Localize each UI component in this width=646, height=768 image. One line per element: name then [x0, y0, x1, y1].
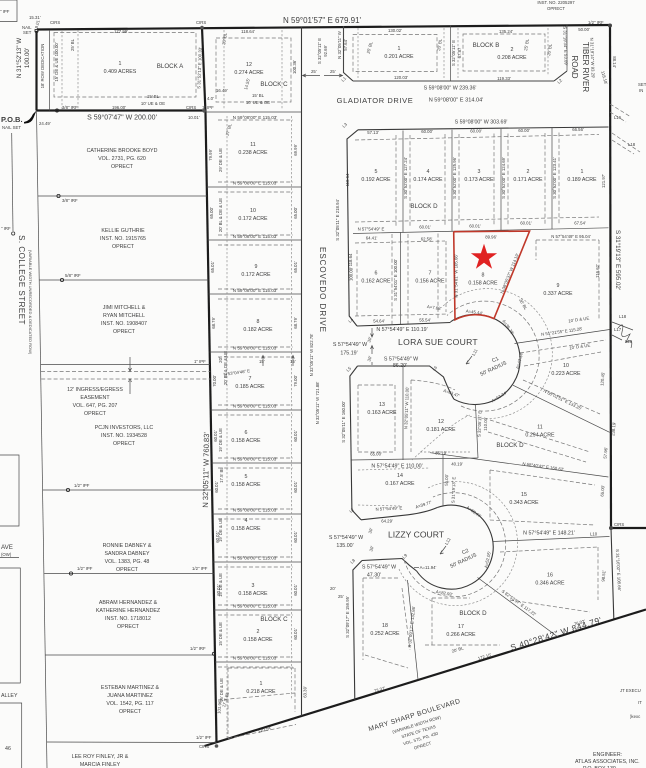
svg-text:8: 8: [257, 319, 260, 325]
svg-text:0.223 ACRE: 0.223 ACRE: [551, 371, 581, 377]
svg-text:ATLAS ASSOCIATES, INC.: ATLAS ASSOCIATES, INC.: [575, 759, 640, 765]
svg-text:57.64': 57.64': [343, 39, 348, 51]
svg-text:4.0': 4.0': [207, 96, 214, 101]
svg-text:CIRS: CIRS: [186, 105, 196, 110]
svg-text:S 57°54'49" W: S 57°54'49" W: [333, 342, 367, 348]
svg-text:BLOCK C: BLOCK C: [260, 616, 288, 623]
svg-text:60.01': 60.01': [419, 225, 431, 230]
svg-text:0.252 ACRE: 0.252 ACRE: [370, 631, 400, 637]
svg-text:" IRF: " IRF: [1, 226, 11, 231]
svg-text:)kexc: )kexc: [630, 714, 641, 719]
svg-text:0.158 ACRE: 0.158 ACRE: [231, 526, 261, 532]
svg-text:1/2" IPF: 1/2" IPF: [77, 566, 93, 571]
svg-text:12: 12: [438, 419, 444, 425]
svg-text:25': 25': [338, 594, 344, 599]
svg-text:2: 2: [257, 629, 260, 635]
svg-text:15' DE & UE 100.00': 15' DE & UE 100.00': [54, 42, 59, 81]
svg-text:N 57°54'49" E: N 57°54'49" E: [358, 227, 385, 232]
svg-text:60.01': 60.01': [214, 481, 219, 493]
svg-text:65.00': 65.00': [600, 485, 606, 497]
svg-text:OPRECT: OPRECT: [84, 411, 107, 417]
svg-text:NAIL SET: NAIL SET: [2, 125, 21, 130]
svg-text:N 32°05'11" W 760.83': N 32°05'11" W 760.83': [201, 432, 211, 508]
svg-text:3: 3: [478, 169, 481, 175]
svg-text:INST. NO. 1908407: INST. NO. 1908407: [101, 321, 147, 327]
svg-text:9: 9: [557, 283, 560, 289]
svg-text:118.64: 118.64: [348, 253, 353, 266]
svg-text:10: 10: [250, 208, 256, 214]
svg-text:N 59°08'00" E 115.03': N 59°08'00" E 115.03': [233, 234, 278, 239]
svg-text:CIRS: CIRS: [50, 20, 60, 25]
svg-text:S 31°19'13" E: S 31°19'13" E: [451, 476, 457, 503]
svg-text:3: 3: [252, 583, 255, 589]
svg-text:0.343 ACRE: 0.343 ACRE: [509, 500, 539, 506]
svg-text:RONNIE DABNEY &: RONNIE DABNEY &: [103, 543, 152, 549]
svg-text:55.00': 55.00': [444, 474, 449, 486]
svg-text:64.29': 64.29': [381, 519, 393, 524]
svg-text:A=11.94': A=11.94': [420, 565, 437, 570]
svg-text:64.41': 64.41': [366, 236, 378, 241]
svg-text:S 31°54'01" E 100.00': S 31°54'01" E 100.00': [393, 259, 398, 301]
svg-text:60.01': 60.01': [215, 531, 220, 543]
svg-text:LIZZY COURT: LIZZY COURT: [388, 530, 445, 540]
svg-text:1" IPF: 1" IPF: [194, 359, 206, 364]
svg-text:15': 15': [259, 359, 265, 364]
svg-text:BLOCK D: BLOCK D: [496, 442, 524, 449]
svg-text:1/2" IPF: 1/2" IPF: [192, 566, 208, 571]
svg-text:110.00': 110.00': [483, 417, 488, 431]
svg-text:N 32°05'11" W 822.78': N 32°05'11" W 822.78': [309, 333, 314, 376]
svg-text:3/8" IRF: 3/8" IRF: [62, 198, 78, 203]
svg-text:4: 4: [427, 169, 430, 175]
svg-text:17.5' BL: 17.5' BL: [219, 467, 224, 483]
svg-text:121.97': 121.97': [601, 174, 606, 188]
svg-text:3/8" IRF: 3/8" IRF: [62, 105, 78, 110]
svg-text:55.54': 55.54': [419, 318, 431, 323]
svg-text:0.337 ACRE: 0.337 ACRE: [543, 291, 573, 297]
svg-text:S 32°05'11" E: S 32°05'11" E: [477, 411, 483, 437]
svg-text:60.01': 60.01': [293, 430, 298, 442]
svg-text:N 59°08'00" E 115.03': N 59°08'00" E 115.03': [233, 115, 278, 120]
svg-text:12: 12: [246, 62, 252, 68]
svg-text:JUANA MARTINEZ: JUANA MARTINEZ: [107, 693, 153, 699]
svg-text:1: 1: [581, 169, 584, 175]
svg-text:135.24': 135.24': [499, 29, 513, 34]
svg-text:65.01': 65.01': [210, 261, 215, 273]
svg-text:100.00': 100.00': [349, 267, 354, 281]
svg-text:60.01': 60.01': [293, 584, 298, 596]
svg-text:0.189 ACRE: 0.189 ACRE: [567, 177, 597, 183]
svg-text:N 31°52'13" W: N 31°52'13" W: [16, 38, 23, 78]
svg-text:4: 4: [245, 518, 248, 524]
svg-text:13: 13: [379, 402, 385, 408]
svg-text:2: 2: [527, 169, 530, 175]
svg-text:63.39': 63.39': [303, 686, 308, 698]
svg-text:OPRECT: OPRECT: [117, 624, 140, 630]
svg-text:S 57°54'49" W: S 57°54'49" W: [384, 357, 418, 363]
svg-text:6: 6: [375, 271, 378, 277]
svg-text:1/2" IRF: 1/2" IRF: [588, 20, 604, 25]
svg-text:65.00': 65.00': [293, 207, 298, 219]
svg-text:BLOCK D: BLOCK D: [459, 610, 487, 617]
svg-text:SANDRA DABNEY: SANDRA DABNEY: [104, 551, 150, 557]
svg-text:68.79': 68.79': [293, 317, 298, 329]
svg-text:N 59°08'00" E 115.03': N 59°08'00" E 115.03': [233, 404, 278, 409]
svg-text:N 59°08'00" E 314.04': N 59°08'00" E 314.04': [429, 98, 484, 104]
svg-text:N 59°08'00" E 115.03': N 59°08'00" E 115.03': [233, 288, 278, 293]
svg-text:15.31': 15.31': [29, 15, 41, 20]
svg-text:N 57°54'49" E 95.04': N 57°54'49" E 95.04': [551, 234, 591, 239]
svg-text:67.87: 67.87: [457, 47, 462, 58]
svg-text:0.163 ACRE: 0.163 ACRE: [367, 410, 397, 416]
svg-text:0.192 ACRE: 0.192 ACRE: [361, 177, 391, 183]
svg-text:IN: IN: [639, 88, 643, 93]
svg-text:10' UE & OE: 10' UE & OE: [246, 100, 270, 105]
svg-text:0.158 ACRE: 0.158 ACRE: [243, 637, 273, 643]
svg-text:100.36': 100.36': [292, 60, 297, 74]
svg-text:0.266 ACRE: 0.266 ACRE: [446, 632, 476, 638]
svg-text:CATHERINE BROOKE BOYD: CATHERINE BROOKE BOYD: [87, 148, 158, 154]
svg-text:OPRECT: OPRECT: [111, 164, 134, 170]
svg-text:1: 1: [260, 681, 263, 687]
svg-text:N 59°08'00" E 115.03': N 59°08'00" E 115.03': [233, 604, 278, 609]
svg-text:OPRECT: OPRECT: [119, 709, 142, 715]
svg-text:(VARIABLE WIDTH UNRECORDED & D: (VARIABLE WIDTH UNRECORDED & DEDICATED R…: [28, 250, 33, 355]
svg-text:0.409 ACRES: 0.409 ACRES: [104, 69, 137, 75]
svg-text:7: 7: [429, 271, 432, 277]
svg-text:116.62': 116.62': [595, 264, 600, 278]
svg-text:60.01': 60.01': [293, 481, 298, 493]
svg-text:ALLEY: ALLEY: [1, 693, 18, 699]
svg-text:KATHERINE HERNANDEZ: KATHERINE HERNANDEZ: [96, 608, 161, 614]
svg-text:CIRS: CIRS: [199, 744, 209, 749]
svg-text:118.64: 118.64: [345, 173, 350, 186]
svg-text:PCJN INVESTORS, LLC: PCJN INVESTORS, LLC: [95, 425, 154, 431]
svg-text:L10: L10: [590, 532, 598, 537]
svg-text:98.51': 98.51': [601, 570, 607, 582]
svg-text:92.69': 92.69': [323, 45, 328, 57]
svg-text:0.182 ACRE: 0.182 ACRE: [243, 327, 273, 333]
svg-text:15' BL: 15' BL: [147, 94, 160, 99]
svg-text:VOL. 1542, PG. 117: VOL. 1542, PG. 117: [106, 701, 153, 707]
svg-text:N 31°54'01" W 105.66': N 31°54'01" W 105.66': [454, 254, 459, 297]
svg-text:CIRS: CIRS: [196, 20, 206, 25]
svg-text:16: 16: [547, 573, 553, 579]
svg-text:15: 15: [521, 492, 527, 498]
svg-text:120.03': 120.03': [394, 75, 408, 80]
svg-text:INST. NO. 1934528: INST. NO. 1934528: [101, 433, 147, 439]
svg-text:70.00': 70.00': [212, 375, 217, 387]
svg-text:SET: SET: [638, 82, 646, 87]
svg-text:KELLIE GUTHRIE: KELLIE GUTHRIE: [101, 228, 145, 234]
svg-text:177.99': 177.99': [114, 29, 128, 34]
svg-text:BLOCK C: BLOCK C: [260, 81, 288, 88]
svg-text:46: 46: [5, 746, 11, 752]
svg-text:57.13': 57.13': [367, 130, 379, 135]
svg-text:10' UE & OE: 10' UE & OE: [141, 101, 165, 106]
svg-text:9: 9: [255, 264, 258, 270]
svg-text:15' BL: 15' BL: [252, 93, 265, 98]
svg-text:IT: IT: [638, 700, 642, 705]
svg-text:S 57°54'49" W: S 57°54'49" W: [362, 565, 396, 571]
svg-text:5: 5: [245, 474, 248, 480]
svg-text:LORA SUE COURT: LORA SUE COURT: [398, 337, 478, 347]
svg-text:VOL. 647, PG. 207: VOL. 647, PG. 207: [73, 403, 118, 409]
svg-text:0.171 ACRE: 0.171 ACRE: [513, 177, 543, 183]
svg-text:66.56': 66.56': [572, 127, 584, 132]
svg-text:INST. NO. 1915765: INST. NO. 1915765: [100, 236, 146, 242]
svg-text:INST. NO. 1718012: INST. NO. 1718012: [105, 616, 151, 622]
svg-text:N 32°05'11" W 721.88': N 32°05'11" W 721.88': [315, 381, 320, 424]
svg-text:88.14': 88.14': [612, 56, 617, 68]
svg-text:65.01': 65.01': [293, 261, 298, 273]
svg-text:2: 2: [511, 47, 514, 53]
svg-text:18: 18: [382, 623, 388, 629]
svg-text:L18: L18: [619, 314, 627, 319]
svg-text:S 32°05'11" E 160.00': S 32°05'11" E 160.00': [341, 401, 346, 443]
svg-text:19' DE & UE: 19' DE & UE: [218, 428, 223, 452]
svg-text:0.158 ACRE: 0.158 ACRE: [238, 591, 268, 597]
svg-text:S 59°08'00" W 303.69': S 59°08'00" W 303.69': [455, 120, 508, 126]
svg-text:S 59°08'00" W 239.36': S 59°08'00" W 239.36': [424, 86, 477, 92]
svg-text:ABRAM HERNANDEZ &: ABRAM HERNANDEZ &: [99, 600, 158, 606]
svg-text:1: 1: [398, 46, 401, 52]
svg-text:0.238 ACRE: 0.238 ACRE: [238, 150, 268, 156]
svg-text:N 59°08'00" E 115.03': N 59°08'00" E 115.03': [233, 346, 278, 351]
svg-text:OPRECT: OPRECT: [113, 441, 136, 447]
svg-text:" IPF: " IPF: [0, 9, 10, 14]
svg-text:25' BL: 25' BL: [70, 38, 75, 51]
svg-text:5/8" IRF: 5/8" IRF: [65, 273, 81, 278]
svg-text:0.158 ACRE: 0.158 ACRE: [231, 438, 261, 444]
svg-text:N 59°08'00" E 115.03': N 59°08'00" E 115.03': [233, 508, 278, 513]
svg-text:0.294 ACRE: 0.294 ACRE: [525, 433, 555, 439]
svg-text:79.99': 79.99': [208, 149, 213, 161]
svg-text:N 59°08'00" E 115.03': N 59°08'00" E 115.03': [233, 457, 278, 462]
svg-text:N 59°08'00" E 115.03': N 59°08'00" E 115.03': [233, 181, 278, 186]
svg-text:60.01': 60.01': [520, 221, 532, 226]
svg-text:S 32°05'11" E 218.94': S 32°05'11" E 218.94': [335, 199, 340, 241]
svg-text:20' BL & DE & UE: 20' BL & DE & UE: [218, 198, 223, 232]
svg-text:N 57°54'49" E 110.19': N 57°54'49" E 110.19': [376, 327, 427, 333]
svg-text:S 31°19'13" E 595.02': S 31°19'13" E 595.02': [614, 230, 621, 290]
svg-text:50.00': 50.00': [578, 27, 590, 32]
svg-text:BLOCK A: BLOCK A: [157, 63, 184, 70]
svg-text:0.172 ACRE: 0.172 ACRE: [241, 272, 271, 278]
svg-text:INST. NO. 2205297: INST. NO. 2205297: [537, 0, 575, 5]
svg-text:65.00': 65.00': [370, 452, 382, 457]
svg-text:OPRECT: OPRECT: [547, 6, 565, 11]
svg-text:40.19': 40.19': [451, 462, 463, 467]
svg-text:0.156 ACRE: 0.156 ACRE: [415, 279, 445, 285]
svg-text:S 57°54'49" W: S 57°54'49" W: [329, 535, 363, 541]
svg-text:0.174 ACRE: 0.174 ACRE: [413, 177, 443, 183]
svg-text:S 30°52'00" E 127.24': S 30°52'00" E 127.24': [403, 157, 408, 199]
svg-text:18' ROW DEDICATION: 18' ROW DEDICATION: [40, 44, 45, 89]
svg-text:S 30°52'00" E 124.69': S 30°52'00" E 124.69': [501, 157, 506, 199]
svg-text:N 57°54'49" E 148.21': N 57°54'49" E 148.21': [523, 531, 575, 537]
svg-text:14: 14: [397, 473, 403, 479]
svg-text:8: 8: [482, 273, 485, 279]
svg-text:54.64': 54.64': [373, 319, 385, 324]
svg-text:11: 11: [537, 425, 543, 431]
svg-text:S 59°07'47" W 200.00': S 59°07'47" W 200.00': [87, 114, 157, 122]
svg-text:69.99': 69.99': [293, 144, 298, 156]
svg-text:ESTEBAN MARTINEZ &: ESTEBAN MARTINEZ &: [101, 685, 160, 691]
svg-text:11: 11: [250, 142, 256, 148]
svg-text:AVE: AVE: [1, 544, 13, 551]
svg-text:P.O.B.: P.O.B.: [1, 115, 23, 124]
svg-text:S 32°05'11" E: S 32°05'11" E: [451, 40, 456, 66]
svg-text:100.00': 100.00': [24, 48, 31, 68]
svg-text:1" IPF: 1" IPF: [202, 105, 214, 110]
svg-text:0.201 ACRE: 0.201 ACRE: [384, 54, 414, 60]
svg-text:0.208 ACRE: 0.208 ACRE: [497, 55, 527, 61]
svg-text:15' DE & UE: 15' DE & UE: [218, 622, 223, 646]
svg-text:SET: SET: [23, 30, 32, 35]
svg-text:24.49': 24.49': [39, 121, 51, 126]
svg-text:MARCIA FINLEY: MARCIA FINLEY: [80, 762, 121, 768]
svg-text:86.20': 86.20': [393, 363, 407, 369]
svg-text:JT EXECU: JT EXECU: [620, 688, 641, 693]
svg-text:0.167 ACRE: 0.167 ACRE: [385, 481, 415, 487]
svg-text:ENGINEER:: ENGINEER:: [593, 752, 622, 758]
svg-text:OPRECT: OPRECT: [113, 329, 136, 335]
svg-text:0.346 ACRE: 0.346 ACRE: [535, 581, 565, 587]
svg-text:S 30°52'00" E 123.41': S 30°52'00" E 123.41': [552, 157, 557, 199]
svg-text:17: 17: [458, 624, 464, 630]
svg-text:1/2" IPF: 1/2" IPF: [196, 735, 212, 740]
svg-text:GLADIATOR DRIVE: GLADIATOR DRIVE: [337, 96, 414, 105]
svg-text:OPRECT: OPRECT: [112, 244, 135, 250]
svg-text:175.19': 175.19': [340, 351, 357, 357]
svg-text:0.158 ACRE: 0.158 ACRE: [468, 281, 498, 287]
svg-text:60.01': 60.01': [216, 584, 221, 596]
svg-text:OPRECT: OPRECT: [116, 567, 139, 573]
svg-text:16.49': 16.49': [216, 88, 228, 93]
svg-text:196.00': 196.00': [112, 105, 126, 110]
svg-text:130.02': 130.02': [388, 28, 402, 33]
svg-text:89.96': 89.96': [485, 235, 497, 240]
svg-text:0.173 ACRE: 0.173 ACRE: [464, 177, 494, 183]
svg-text:60.00': 60.00': [470, 129, 482, 134]
svg-text:10.01': 10.01': [188, 115, 200, 120]
svg-text:135.00': 135.00': [336, 543, 353, 549]
svg-text:N 32°05'11" W: N 32°05'11" W: [337, 30, 342, 59]
svg-text:1/2" IPF: 1/2" IPF: [74, 483, 90, 488]
svg-text:7: 7: [249, 376, 252, 382]
svg-text:N 59°01'57" E 679.91': N 59°01'57" E 679.91': [283, 16, 362, 25]
svg-text:25': 25': [330, 69, 336, 74]
svg-text:119.33': 119.33': [497, 76, 511, 81]
svg-text:12' INGRESS/EGRESS: 12' INGRESS/EGRESS: [67, 387, 123, 393]
svg-text:VOL. 2731, PG. 620: VOL. 2731, PG. 620: [98, 156, 146, 162]
svg-text:S 32°09'17" E 159.95': S 32°09'17" E 159.95': [345, 596, 350, 638]
svg-text:47.30': 47.30': [367, 573, 381, 579]
svg-text:0.162 ACRE: 0.162 ACRE: [361, 279, 391, 285]
svg-text:20': 20': [330, 586, 336, 591]
svg-text:0.172 ACRE: 0.172 ACRE: [238, 216, 268, 222]
svg-text:25': 25': [311, 69, 317, 74]
svg-text:(OW): (OW): [1, 552, 12, 557]
svg-text:29' DE & UE: 29' DE & UE: [218, 148, 223, 172]
svg-text:118.64': 118.64': [241, 29, 255, 34]
svg-text:0.185 ACRE: 0.185 ACRE: [235, 384, 265, 390]
svg-text:RYAN MITCHELL: RYAN MITCHELL: [103, 313, 145, 319]
svg-text:0.181 ACRE: 0.181 ACRE: [426, 427, 456, 433]
svg-text:5: 5: [375, 169, 378, 175]
svg-text:N 57°54'49" E 110.00': N 57°54'49" E 110.00': [371, 464, 422, 470]
svg-text:TIBER RIVER: TIBER RIVER: [581, 42, 590, 92]
svg-text:60.00': 60.00': [518, 128, 530, 133]
svg-text:60.01': 60.01': [469, 224, 481, 229]
svg-text:62.58': 62.58': [421, 237, 433, 242]
svg-text:VOL. 1383, PG. 48: VOL. 1383, PG. 48: [105, 559, 150, 565]
svg-text:0.158 ACRE: 0.158 ACRE: [231, 482, 261, 488]
svg-text:79.00': 79.00': [293, 375, 298, 387]
svg-text:BLOCK D: BLOCK D: [410, 203, 438, 210]
svg-text:L16: L16: [614, 115, 622, 120]
svg-text:BLOCK B: BLOCK B: [473, 42, 500, 49]
svg-text:68.79': 68.79': [211, 317, 216, 329]
svg-text:ROAD: ROAD: [570, 55, 579, 78]
svg-text:1/2" IRF: 1/2" IRF: [190, 646, 206, 651]
svg-text:N 59°08'00" E 115.03': N 59°08'00" E 115.03': [233, 556, 278, 561]
svg-text:10: 10: [563, 363, 569, 369]
svg-text:EASEMENT: EASEMENT: [80, 395, 110, 401]
svg-text:S 32°05'11" E: S 32°05'11" E: [317, 38, 322, 64]
svg-text:N 59°08'00" E 115.03': N 59°08'00" E 115.03': [233, 656, 278, 661]
svg-text:6: 6: [245, 430, 248, 436]
svg-text:1: 1: [119, 61, 122, 67]
svg-text:85.19': 85.19': [435, 451, 447, 456]
svg-text:20' BL & DE & UE: 20' BL & DE & UE: [223, 351, 228, 385]
svg-text:ESCOVEDO DRIVE: ESCOVEDO DRIVE: [318, 247, 327, 333]
svg-text:CIRS: CIRS: [614, 522, 624, 527]
svg-text:JIMI MITCHELL &: JIMI MITCHELL &: [103, 305, 146, 311]
svg-text:60.00': 60.00': [421, 129, 433, 134]
svg-text:60.01': 60.01': [293, 531, 298, 543]
svg-text:60.01': 60.01': [293, 628, 298, 640]
svg-text:65.00': 65.00': [209, 207, 214, 219]
svg-text:S. COLLEGE STREET: S. COLLEGE STREET: [17, 235, 26, 325]
svg-text:67.54': 67.54': [574, 221, 586, 226]
svg-text:57.96': 57.96': [603, 447, 609, 459]
svg-text:LEE ROY FINLEY, JR &: LEE ROY FINLEY, JR &: [72, 754, 129, 760]
svg-text:S 30°52'00" E 125.96': S 30°52'00" E 125.96': [452, 157, 457, 199]
svg-text:0.218 ACRE: 0.218 ACRE: [246, 689, 276, 695]
svg-text:0.274 ACRE: 0.274 ACRE: [234, 70, 264, 76]
